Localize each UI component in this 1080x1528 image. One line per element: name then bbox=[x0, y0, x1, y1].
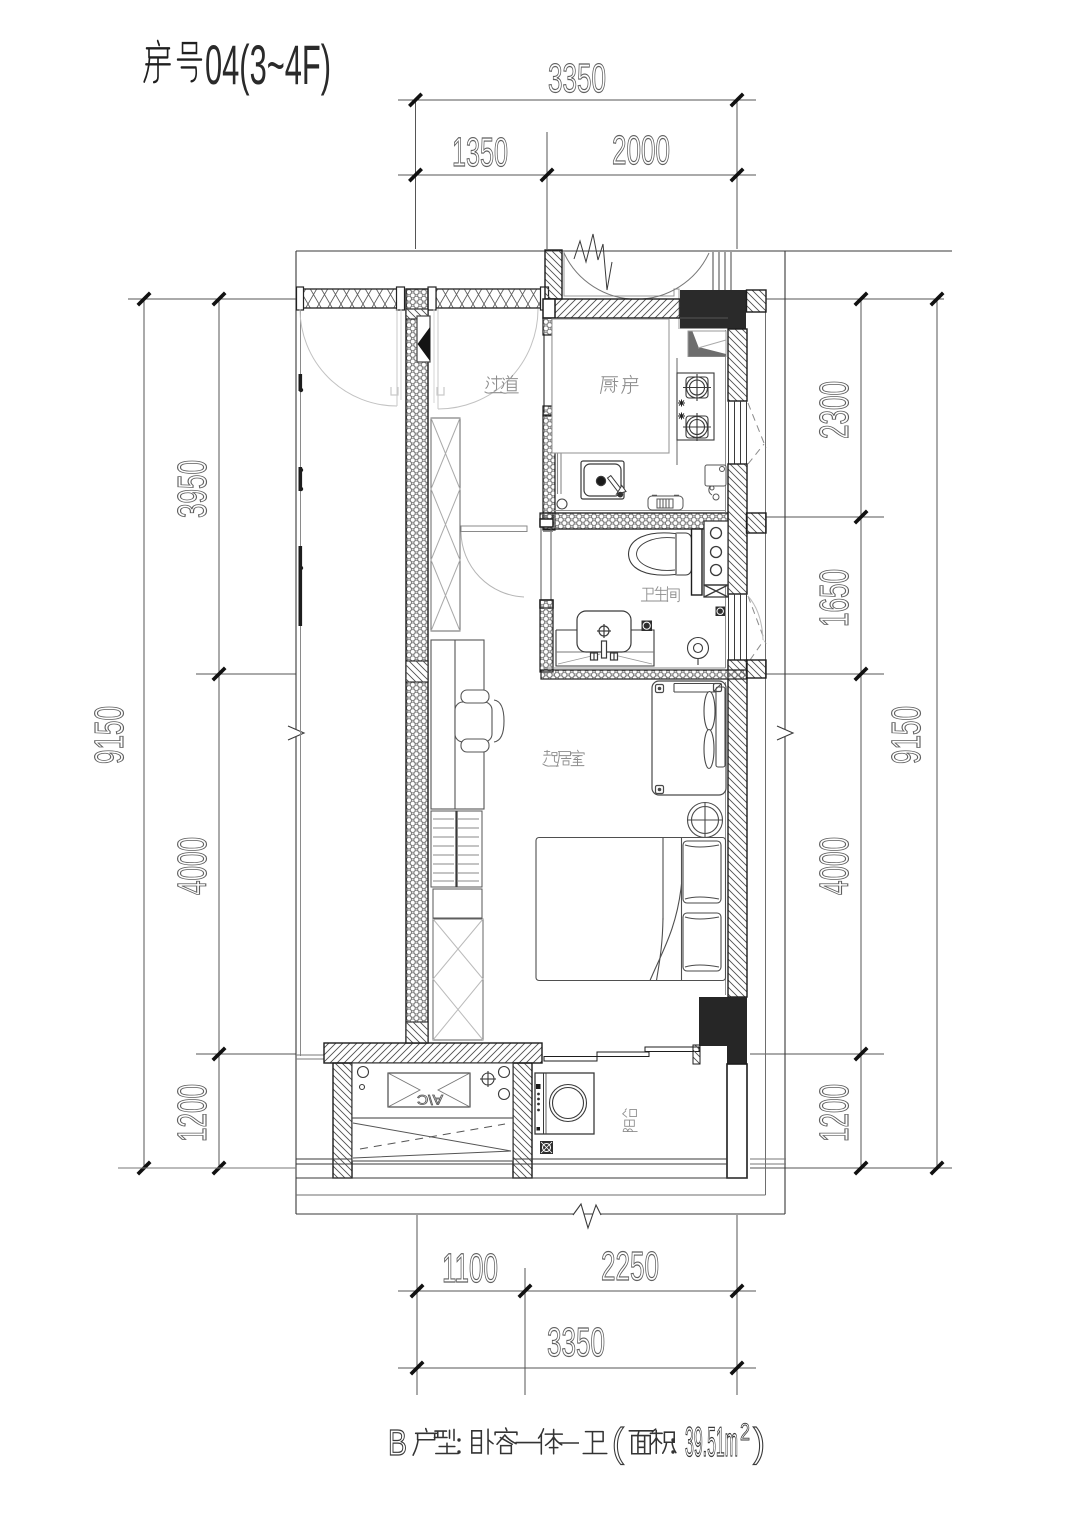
svg-text:A\C: A\C bbox=[417, 1092, 443, 1108]
svg-text:(: ( bbox=[612, 1421, 625, 1465]
svg-text:3350: 3350 bbox=[548, 55, 606, 101]
svg-text:4000: 4000 bbox=[811, 837, 857, 895]
svg-text:B: B bbox=[388, 1422, 407, 1463]
svg-text:1100: 1100 bbox=[442, 1245, 498, 1291]
svg-text:1350: 1350 bbox=[452, 129, 508, 175]
svg-text:4000: 4000 bbox=[169, 837, 215, 895]
svg-text:39.51m: 39.51m bbox=[685, 1418, 738, 1465]
svg-text:2300: 2300 bbox=[811, 381, 857, 439]
svg-text:3950: 3950 bbox=[169, 460, 215, 518]
svg-text:2: 2 bbox=[740, 1419, 750, 1446]
svg-text:04(3~4F): 04(3~4F) bbox=[205, 33, 331, 96]
svg-text:2250: 2250 bbox=[601, 1243, 659, 1289]
svg-text:3350: 3350 bbox=[547, 1319, 605, 1365]
svg-text:1200: 1200 bbox=[169, 1084, 215, 1142]
svg-text:9150: 9150 bbox=[883, 706, 929, 764]
svg-text:1200: 1200 bbox=[811, 1084, 857, 1142]
svg-text:2000: 2000 bbox=[612, 127, 670, 173]
svg-text:9150: 9150 bbox=[86, 706, 132, 764]
svg-text:): ) bbox=[753, 1421, 765, 1465]
svg-text:1650: 1650 bbox=[811, 569, 857, 627]
